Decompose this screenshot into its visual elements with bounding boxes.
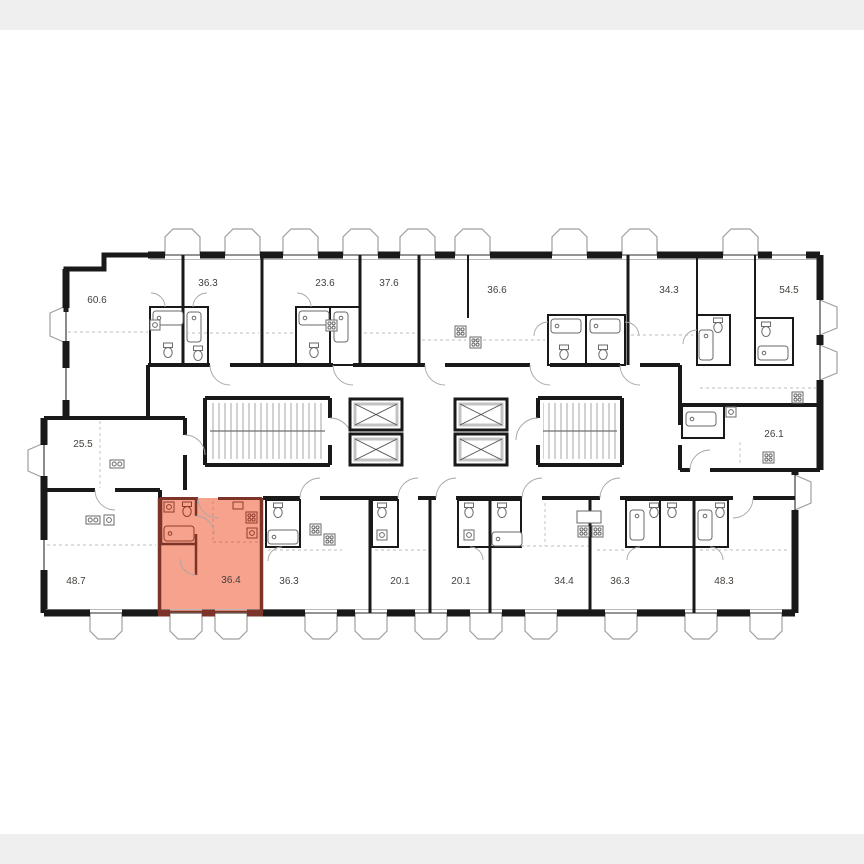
stove-icon xyxy=(470,337,481,348)
area-label: 36.3 xyxy=(279,576,299,587)
balcony-bay xyxy=(90,613,122,639)
stove-icon xyxy=(792,392,803,403)
area-label: 20.1 xyxy=(451,576,471,587)
stove-icon xyxy=(455,326,466,337)
balcony-bay xyxy=(455,229,490,255)
toilet-icon xyxy=(599,345,608,360)
sink-icon xyxy=(726,407,736,417)
balcony-bay xyxy=(355,613,387,639)
area-label: 36.6 xyxy=(487,285,507,296)
toilet-icon xyxy=(762,322,771,337)
bathtub-icon xyxy=(758,346,788,360)
balcony-bay xyxy=(605,613,637,639)
stove-icon xyxy=(310,524,321,535)
bathtub-icon xyxy=(698,510,712,540)
balcony-bay xyxy=(170,613,202,639)
balcony-bay xyxy=(723,229,758,255)
area-label: 36.3 xyxy=(610,576,630,587)
bathtub-icon xyxy=(686,412,716,426)
bathtub-icon xyxy=(268,530,298,544)
washer-icon xyxy=(86,516,100,524)
area-label: 37.6 xyxy=(379,278,399,289)
area-label: 34.3 xyxy=(659,285,679,296)
bathtub-icon xyxy=(299,311,329,325)
toilet-icon xyxy=(716,503,725,518)
bathtub-icon xyxy=(492,532,522,546)
bathtub-icon xyxy=(551,319,581,333)
bathtub-icon xyxy=(187,312,201,342)
washer-icon xyxy=(110,460,124,468)
balcony-bay xyxy=(622,229,657,255)
toilet-icon xyxy=(164,343,173,358)
sink-icon xyxy=(104,515,114,525)
sink-icon xyxy=(377,530,387,540)
area-label: 23.6 xyxy=(315,278,335,289)
area-label: 48.3 xyxy=(714,576,734,587)
stove-icon xyxy=(324,534,335,545)
stove-icon xyxy=(578,526,589,537)
highlighted-apartment-36-4 xyxy=(158,498,263,613)
stove-icon xyxy=(326,320,337,331)
balcony-bay xyxy=(343,229,378,255)
area-label: 36.3 xyxy=(198,278,218,289)
bathtub-icon xyxy=(630,510,644,540)
toilet-icon xyxy=(498,503,507,518)
sink-icon xyxy=(150,320,160,330)
balcony-bay xyxy=(525,613,557,639)
stove-icon xyxy=(592,526,603,537)
toilet-icon xyxy=(274,503,283,518)
balcony-bay xyxy=(750,613,782,639)
area-label: 34.4 xyxy=(554,576,574,587)
balcony-bay xyxy=(283,229,318,255)
balcony-bay xyxy=(305,613,337,639)
toilet-icon xyxy=(714,318,723,333)
floorplan-image: 60.6 36.3 23.6 37.6 36.6 34.3 54.5 25.5 … xyxy=(0,0,864,864)
balcony-bay xyxy=(400,229,435,255)
balcony-bay xyxy=(215,613,247,639)
floorplan-viewer: 60.6 36.3 23.6 37.6 36.6 34.3 54.5 25.5 … xyxy=(0,0,864,864)
toilet-icon xyxy=(668,503,677,518)
balcony-bay xyxy=(685,613,717,639)
photo-background xyxy=(0,30,864,834)
toilet-icon xyxy=(378,503,387,518)
toilet-icon xyxy=(310,343,319,358)
sink-icon xyxy=(464,530,474,540)
toilet-icon xyxy=(194,346,203,361)
balcony-bay xyxy=(415,613,447,639)
kitchen-counter xyxy=(577,511,601,523)
area-label: 26.1 xyxy=(764,429,784,440)
bathtub-icon xyxy=(699,330,713,360)
toilet-icon xyxy=(560,345,569,360)
balcony-bay xyxy=(165,229,200,255)
area-label: 20.1 xyxy=(390,576,410,587)
toilet-icon xyxy=(650,503,659,518)
balcony-bay xyxy=(552,229,587,255)
toilet-icon xyxy=(465,503,474,518)
area-label: 60.6 xyxy=(87,295,107,306)
area-label: 54.5 xyxy=(779,285,799,296)
balcony-bay xyxy=(225,229,260,255)
area-label-highlighted: 36.4 xyxy=(221,575,241,586)
area-label: 25.5 xyxy=(73,439,93,450)
area-label: 48.7 xyxy=(66,576,86,587)
stove-icon xyxy=(763,452,774,463)
balcony-bay xyxy=(470,613,502,639)
bathtub-icon xyxy=(590,319,620,333)
